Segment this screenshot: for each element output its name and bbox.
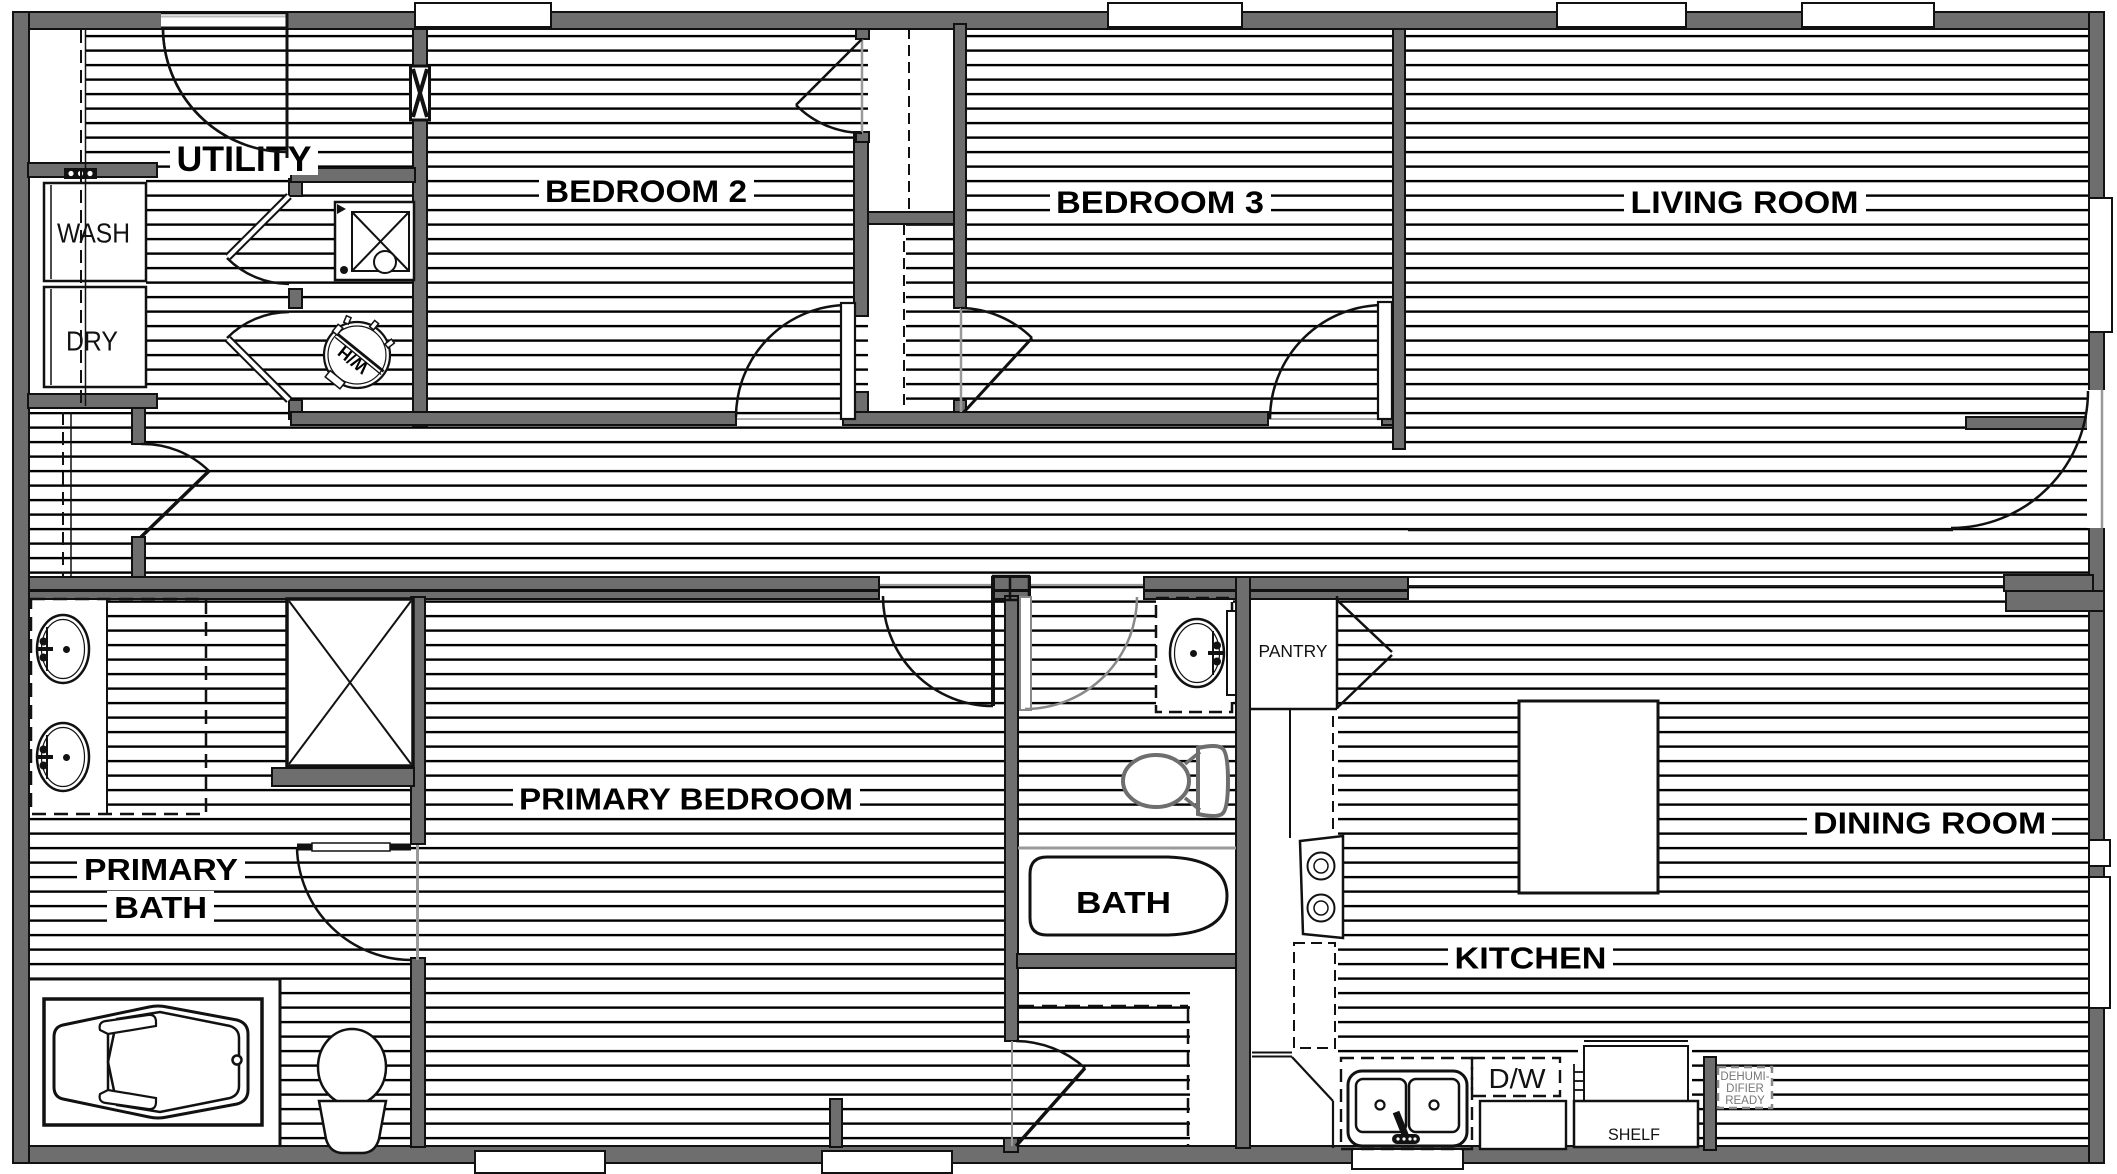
svg-text:PRIMARY BEDROOM: PRIMARY BEDROOM xyxy=(519,782,853,817)
svg-text:PANTRY: PANTRY xyxy=(1259,641,1328,661)
svg-text:DEHUMI-: DEHUMI- xyxy=(1720,1071,1769,1083)
svg-text:DRY: DRY xyxy=(66,326,118,357)
svg-text:BEDROOM 3: BEDROOM 3 xyxy=(1056,184,1264,220)
svg-text:READY: READY xyxy=(1725,1095,1765,1107)
svg-text:LIVING ROOM: LIVING ROOM xyxy=(1631,184,1859,220)
svg-text:BATH: BATH xyxy=(114,890,207,925)
svg-text:BEDROOM 2: BEDROOM 2 xyxy=(545,173,747,209)
svg-text:WASH: WASH xyxy=(57,218,130,249)
svg-text:PRIMARY: PRIMARY xyxy=(84,852,238,887)
svg-text:BATH: BATH xyxy=(1076,885,1171,920)
svg-text:SHELF: SHELF xyxy=(1608,1125,1660,1144)
svg-text:D/W: D/W xyxy=(1489,1063,1547,1094)
svg-text:UTILITY: UTILITY xyxy=(177,140,312,179)
svg-text:DINING ROOM: DINING ROOM xyxy=(1813,806,2046,841)
svg-text:KITCHEN: KITCHEN xyxy=(1455,941,1607,976)
svg-text:DIFIER: DIFIER xyxy=(1726,1083,1764,1095)
